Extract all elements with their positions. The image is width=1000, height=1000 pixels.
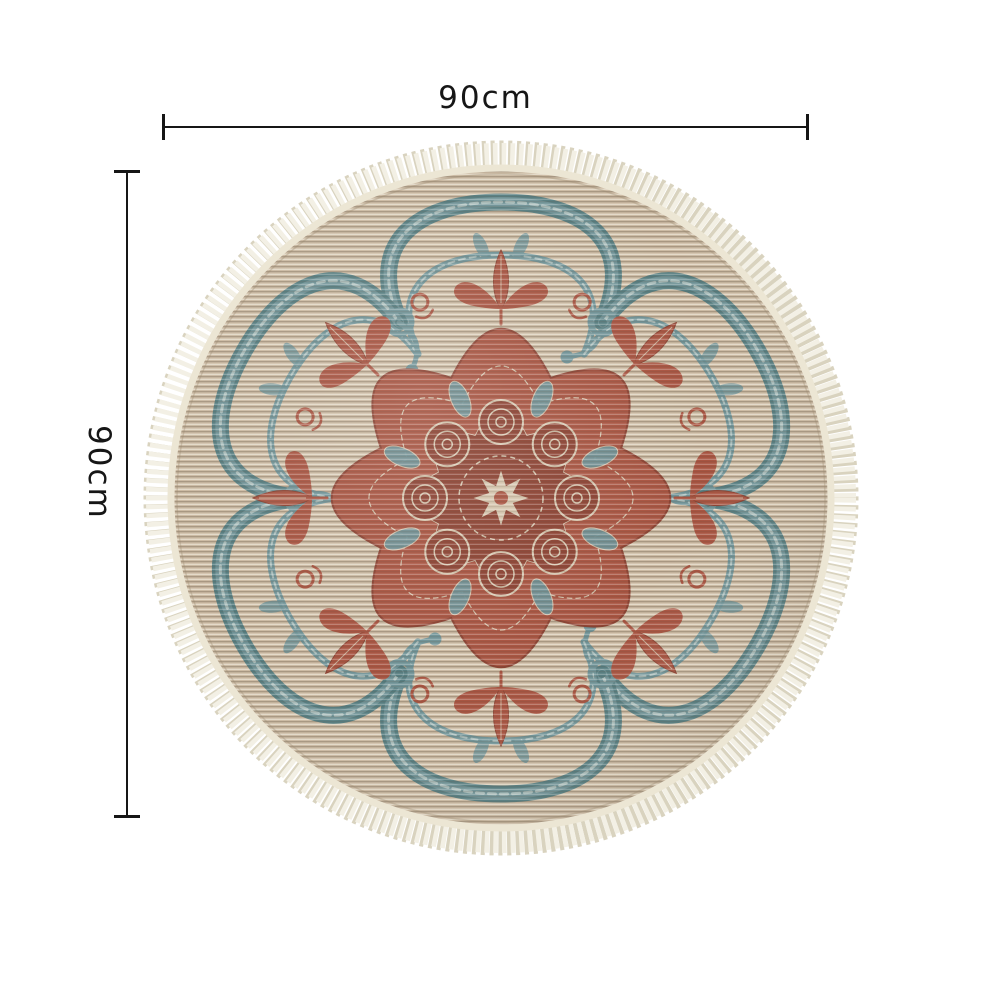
width-dimension-label: 90cm [163, 80, 808, 116]
height-dimension-line [126, 172, 128, 818]
product-image: 90cm 90cm [0, 0, 1000, 1000]
width-dimension-line [163, 126, 808, 128]
rug-photo [136, 133, 866, 863]
height-dimension-label: 90cm [81, 425, 117, 517]
